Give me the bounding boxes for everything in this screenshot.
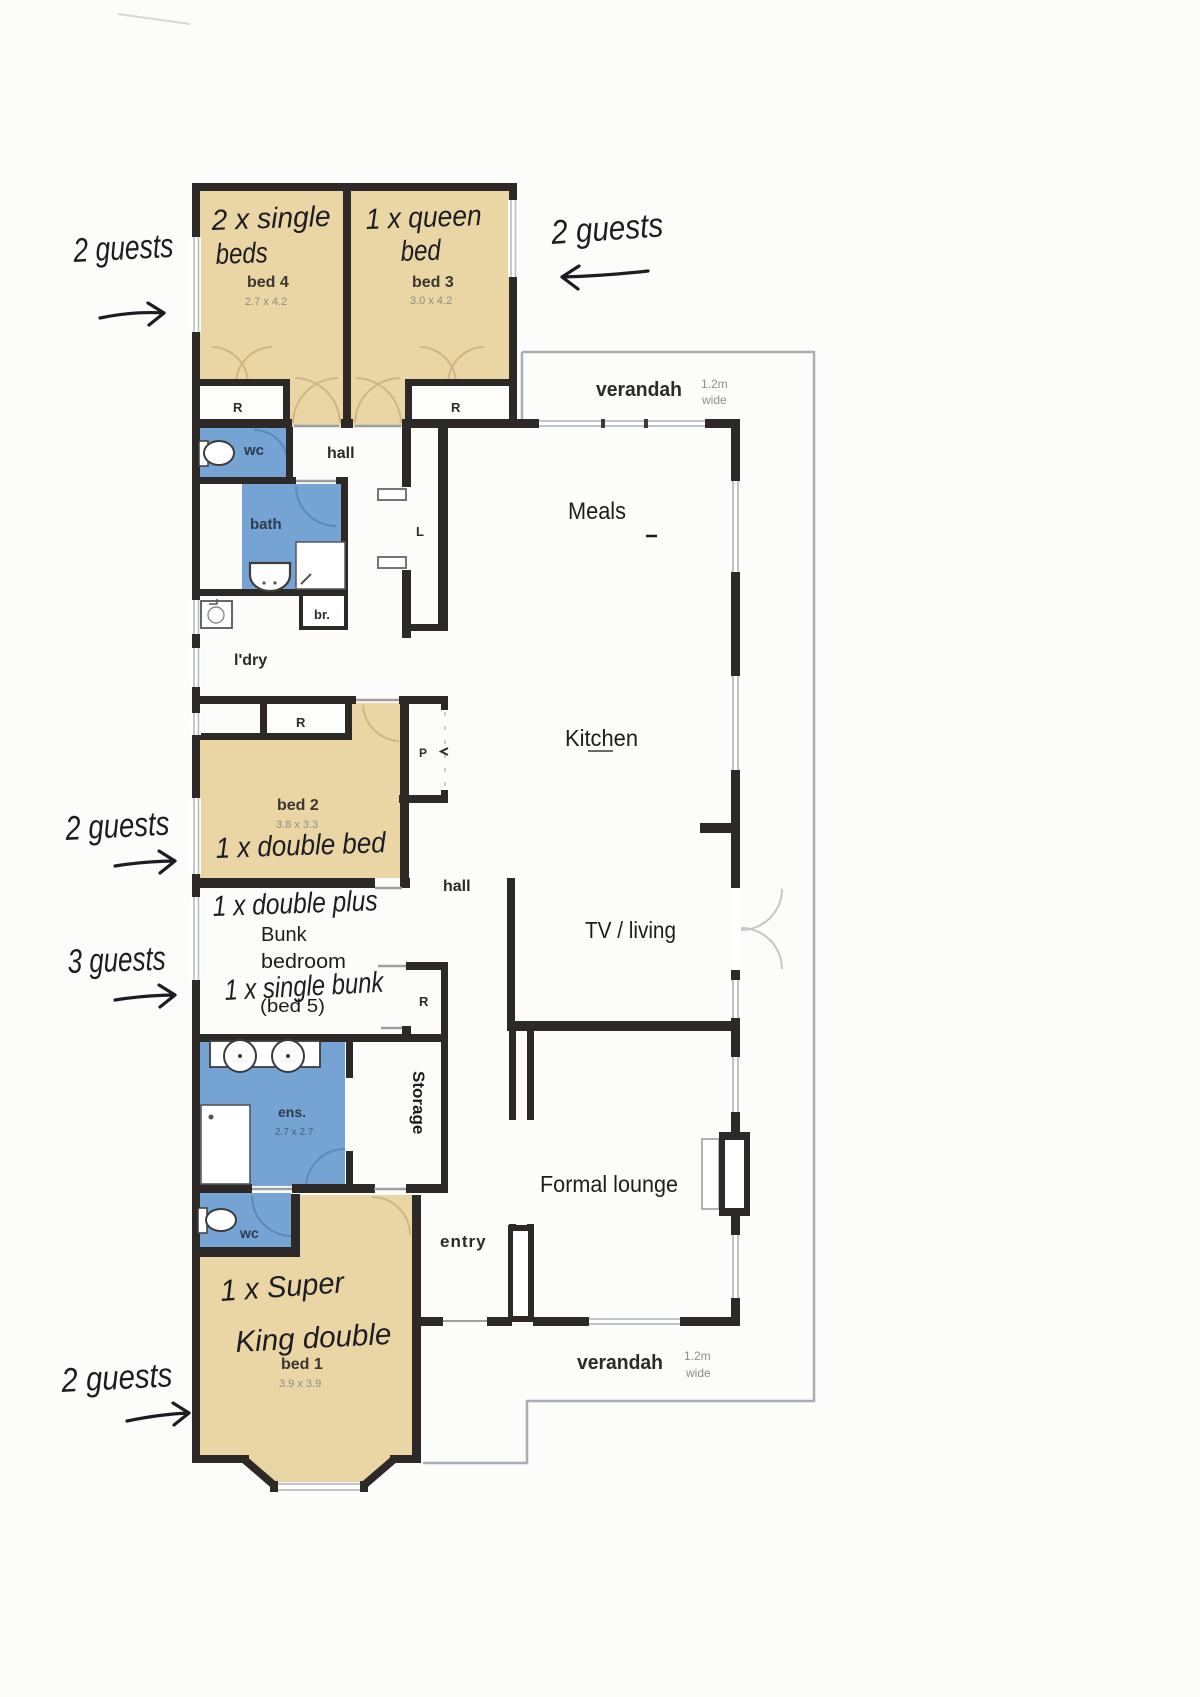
svg-text:1.2m: 1.2m — [684, 1349, 711, 1363]
svg-text:2 guests: 2 guests — [64, 805, 171, 848]
svg-text:3 guests: 3 guests — [67, 940, 166, 981]
svg-text:L: L — [416, 524, 424, 539]
svg-text:2 guests: 2 guests — [60, 1356, 174, 1400]
svg-text:1 x double plus: 1 x double plus — [212, 885, 378, 923]
svg-text:2.7 x 4.2: 2.7 x 4.2 — [245, 296, 287, 308]
svg-text:wide: wide — [685, 1366, 711, 1380]
svg-text:2.7 x 2.7: 2.7 x 2.7 — [275, 1127, 314, 1138]
svg-text:hall: hall — [443, 878, 471, 895]
svg-text:R: R — [233, 400, 243, 415]
svg-text:Kitchen: Kitchen — [565, 725, 638, 751]
svg-text:br.: br. — [314, 607, 330, 622]
svg-text:1.2m: 1.2m — [701, 377, 728, 391]
svg-text:verandah: verandah — [596, 379, 682, 401]
svg-text:Formal lounge: Formal lounge — [540, 1171, 678, 1197]
svg-text:bed: bed — [400, 235, 442, 268]
svg-text:wide: wide — [701, 393, 727, 407]
svg-text:bath: bath — [250, 516, 282, 533]
svg-text:2 guests: 2 guests — [549, 206, 664, 252]
svg-text:Storage: Storage — [409, 1071, 428, 1134]
svg-text:l'dry: l'dry — [234, 652, 267, 669]
svg-text:3.0 x 4.2: 3.0 x 4.2 — [410, 295, 452, 307]
svg-text:2 x single: 2 x single — [210, 201, 331, 237]
svg-text:R: R — [296, 715, 306, 730]
svg-text:Meals: Meals — [568, 498, 626, 525]
svg-text:beds: beds — [215, 237, 268, 271]
svg-text:R: R — [419, 994, 429, 1009]
svg-text:ens.: ens. — [278, 1104, 306, 1120]
svg-text:P: P — [419, 746, 427, 760]
svg-text:3.9 x 3.9: 3.9 x 3.9 — [279, 1378, 321, 1390]
svg-text:hall: hall — [327, 445, 355, 462]
svg-text:bed 4: bed 4 — [247, 274, 289, 291]
svg-text:1 x double bed: 1 x double bed — [215, 827, 387, 865]
svg-text:Bunk: Bunk — [261, 924, 308, 946]
svg-text:TV / living: TV / living — [585, 917, 676, 943]
svg-text:wc: wc — [239, 1225, 259, 1241]
svg-text:entry: entry — [440, 1232, 487, 1251]
svg-text:1 x queen: 1 x queen — [365, 200, 482, 236]
svg-text:R: R — [451, 400, 461, 415]
svg-text:bed 1: bed 1 — [281, 1356, 323, 1373]
svg-text:bed 2: bed 2 — [277, 797, 319, 814]
svg-text:bed 3: bed 3 — [412, 274, 454, 291]
svg-text:verandah: verandah — [577, 1352, 663, 1374]
svg-text:wc: wc — [243, 442, 264, 459]
svg-text:2 guests: 2 guests — [72, 227, 175, 270]
